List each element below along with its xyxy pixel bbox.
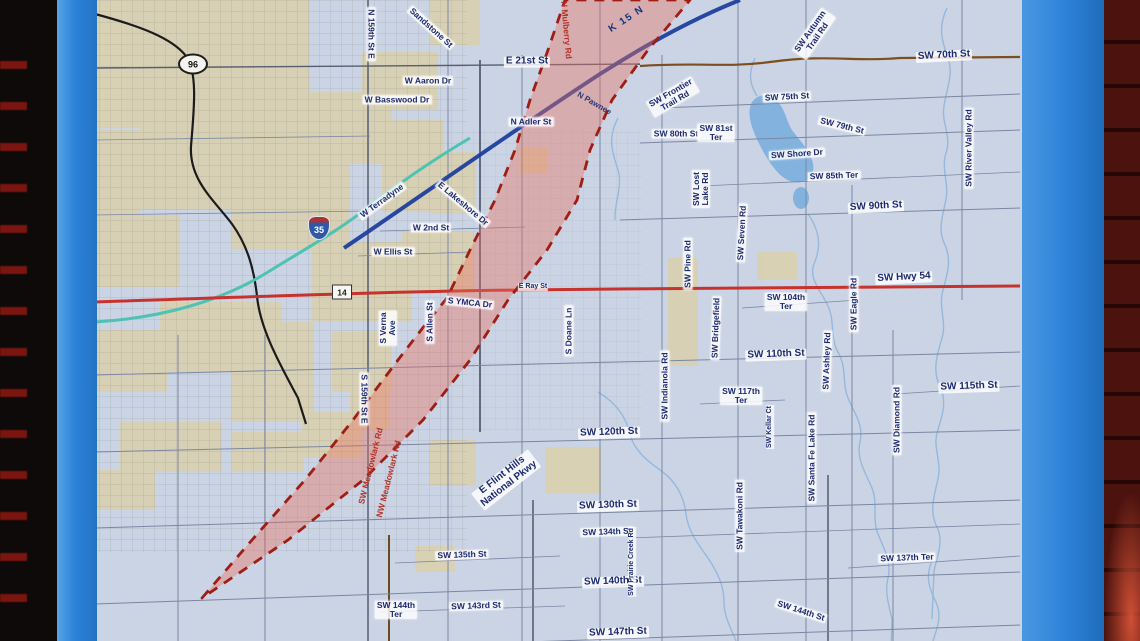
window-blinds-icon	[0, 28, 27, 608]
wall-light-reflection	[1104, 491, 1140, 641]
background-wall-right	[1104, 0, 1140, 641]
city-street-grid-texture	[95, 0, 467, 552]
pond	[793, 187, 809, 209]
photo-of-tornado-path-map: N 159th St ESandstone StE 21st StW Aaron…	[0, 0, 1140, 641]
background-wall-left	[0, 0, 57, 641]
map-graphics	[0, 0, 1140, 641]
display-board-left-edge	[57, 0, 97, 641]
display-board-right-edge	[1022, 0, 1104, 641]
